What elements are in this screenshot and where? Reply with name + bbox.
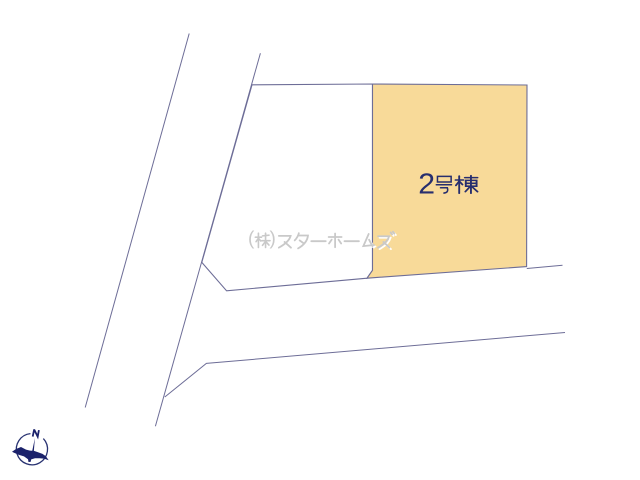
svg-text:2: 2 <box>418 168 435 200</box>
svg-text:): ) <box>270 228 276 249</box>
svg-text:(: ( <box>248 228 255 249</box>
